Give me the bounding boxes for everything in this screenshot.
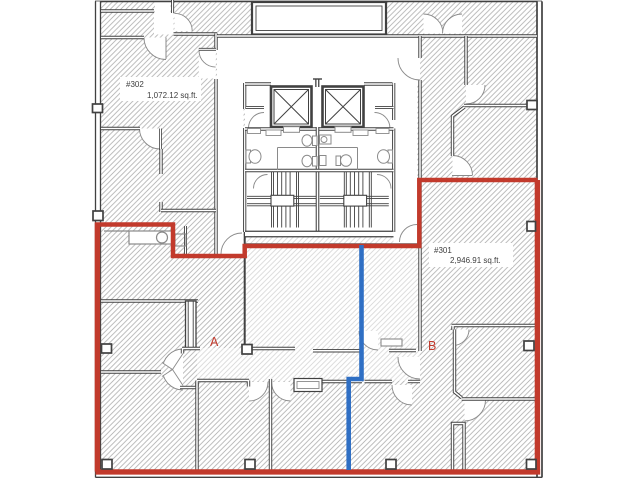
svg-text:#301: #301	[434, 246, 452, 255]
svg-text:2,946.91 sq.ft.: 2,946.91 sq.ft.	[450, 256, 501, 265]
svg-text:#302: #302	[126, 80, 144, 89]
svg-text:A: A	[210, 335, 219, 349]
svg-text:B: B	[428, 339, 436, 353]
svg-text:1,072.12 sq.ft.: 1,072.12 sq.ft.	[147, 91, 198, 100]
